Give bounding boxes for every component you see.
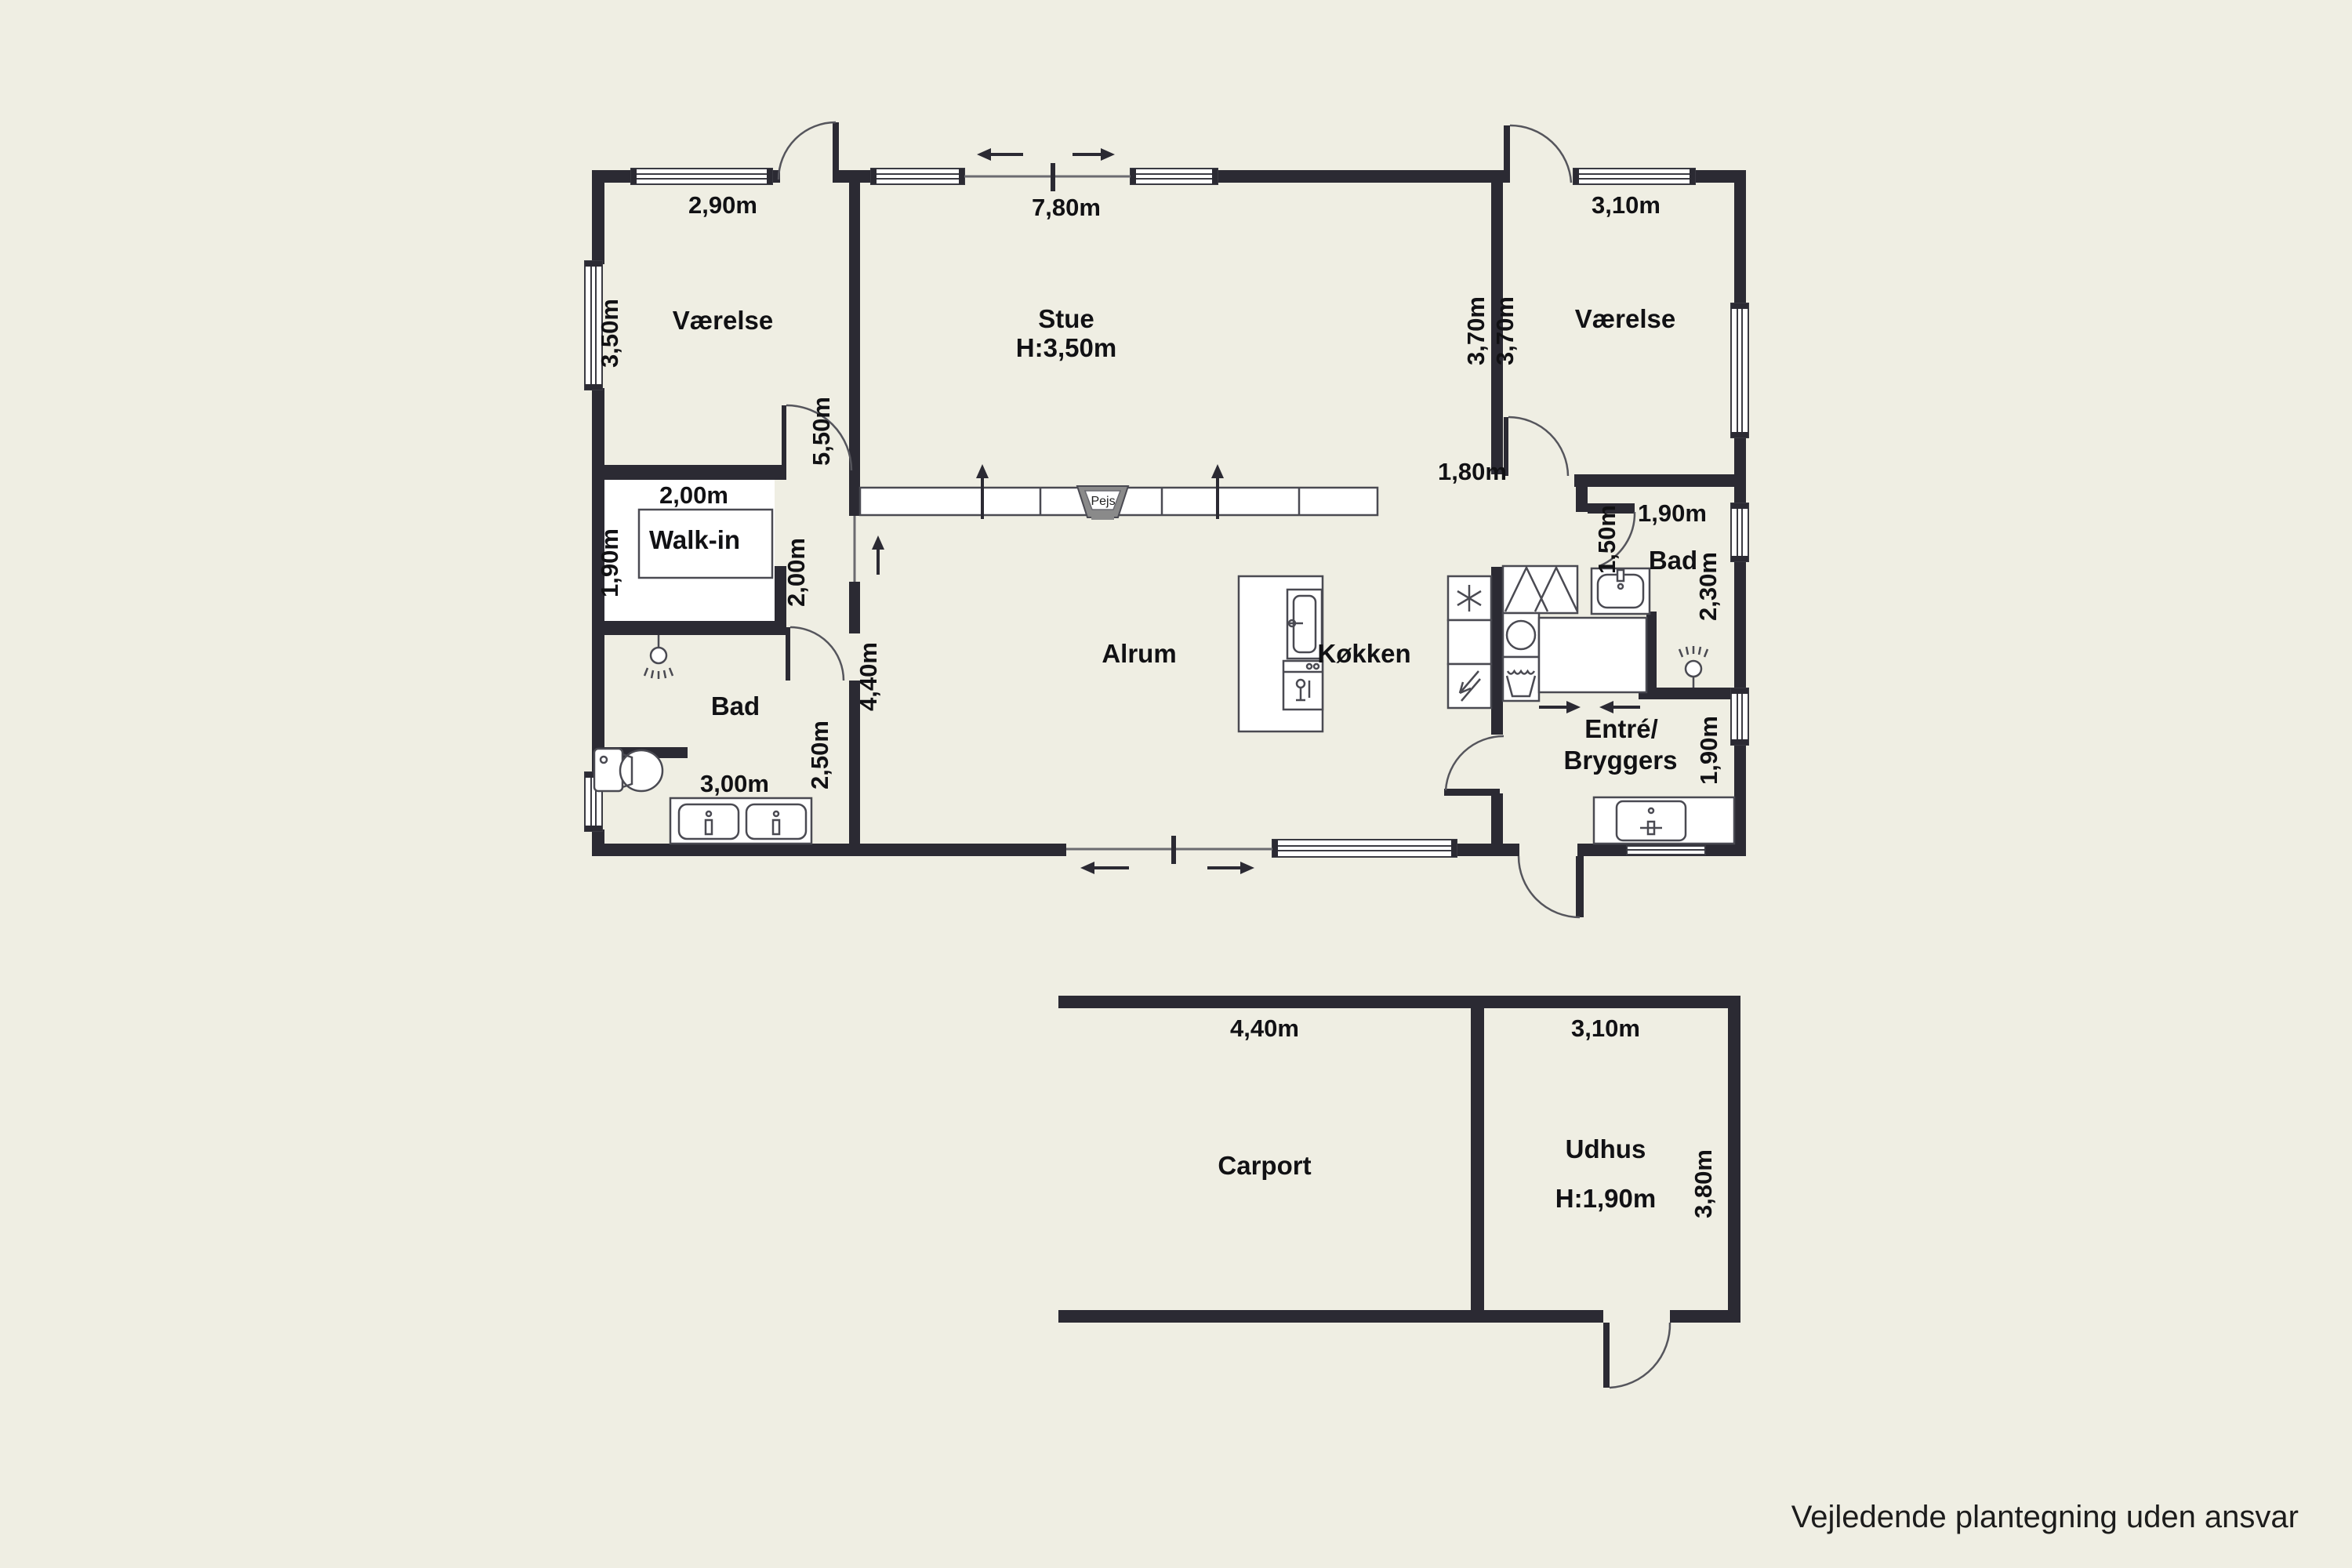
room-label-udhus-height: H:1,90m xyxy=(1555,1184,1656,1213)
dim-carport-width: 4,40m xyxy=(1230,1014,1299,1042)
window xyxy=(1131,169,1218,184)
dim-corridor-length: 2,00m xyxy=(782,538,810,607)
window xyxy=(631,169,772,184)
laundry-sink-icon xyxy=(1503,657,1539,701)
sliding-door-tick xyxy=(1171,836,1176,864)
dim-vaerelse-left-depth: 3,50m xyxy=(596,299,623,368)
faucet-icon xyxy=(773,820,779,834)
dim-udhus-width: 3,10m xyxy=(1571,1014,1640,1042)
room-label-vaerelse-right: Værelse xyxy=(1575,304,1675,333)
dim-bad-right-width: 1,90m xyxy=(1638,499,1707,527)
fireplace-label: Pejs xyxy=(1091,495,1115,508)
window xyxy=(1731,688,1748,745)
dim-hall-wall: 5,50m xyxy=(808,397,835,466)
dim-alrum-depth: 4,40m xyxy=(855,642,882,711)
stue-edge-band: Pejs xyxy=(860,486,1377,520)
dim-stue-opening: 1,80m xyxy=(1438,458,1507,485)
kitchen-island xyxy=(1239,576,1323,731)
entre-fixtures xyxy=(1594,797,1734,844)
dim-vaerelse-right-depth: 3,70m xyxy=(1491,296,1519,365)
fridge-freezer-icon xyxy=(1448,576,1491,620)
room-label-koekken: Køkken xyxy=(1317,639,1410,668)
room-label-alrum: Alrum xyxy=(1102,639,1176,668)
room-label-entre: Entré/ xyxy=(1584,714,1658,743)
washing-machine-icon xyxy=(1503,613,1539,657)
hall-cabinet-icon xyxy=(1503,566,1577,613)
dim-walkin-width: 2,00m xyxy=(659,481,728,509)
dim-walkin-depth: 1,90m xyxy=(596,528,623,597)
dishwasher-icon xyxy=(1283,661,1323,710)
dim-entre-width: 1,90m xyxy=(1695,716,1722,785)
dim-stue-width: 7,80m xyxy=(1032,194,1101,221)
room-label-bad-right: Bad xyxy=(1649,546,1697,575)
window xyxy=(1272,840,1457,857)
dim-vaerelse-right-width: 3,10m xyxy=(1592,191,1661,219)
room-label-carport: Carport xyxy=(1218,1151,1311,1180)
stove-icon xyxy=(1448,664,1491,708)
room-label-stue: Stue xyxy=(1038,304,1094,333)
room-label-walk-in: Walk-in xyxy=(649,525,740,554)
canvas-background xyxy=(0,0,2352,1568)
dim-bad-right-depth: 2,30m xyxy=(1694,552,1722,621)
faucet-icon xyxy=(706,820,712,834)
dim-hall-width: 1,50m xyxy=(1593,505,1621,574)
dim-bad-left-width: 3,00m xyxy=(700,770,769,797)
sliding-door-tick xyxy=(1051,163,1055,191)
room-label-bad-left: Bad xyxy=(711,691,760,720)
room-label-stue-height: H:3,50m xyxy=(1016,333,1116,362)
dim-udhus-depth: 3,80m xyxy=(1690,1149,1717,1218)
utility-counter xyxy=(1539,618,1646,692)
window xyxy=(1627,846,1705,855)
double-sink-vanity xyxy=(670,798,811,844)
floor-plan: Pejs xyxy=(0,0,2352,1568)
dim-stue-depth: 3,70m xyxy=(1462,296,1490,365)
kitchen-cabinet xyxy=(1448,620,1491,664)
window xyxy=(1731,303,1748,437)
entre-counter xyxy=(1594,797,1734,844)
dim-vaerelse-left-width: 2,90m xyxy=(688,191,757,219)
sink-icon xyxy=(1592,568,1650,614)
room-label-vaerelse-left: Værelse xyxy=(673,306,773,335)
toilet-icon xyxy=(594,749,662,791)
dim-bad-left-depth: 2,50m xyxy=(806,720,833,789)
window xyxy=(1573,169,1695,184)
window xyxy=(871,169,964,184)
room-label-bryggers: Bryggers xyxy=(1564,746,1678,775)
disclaimer-text: Vejledende plantegning uden ansvar xyxy=(1791,1500,2299,1534)
room-label-udhus: Udhus xyxy=(1566,1134,1646,1163)
window xyxy=(1731,503,1748,561)
